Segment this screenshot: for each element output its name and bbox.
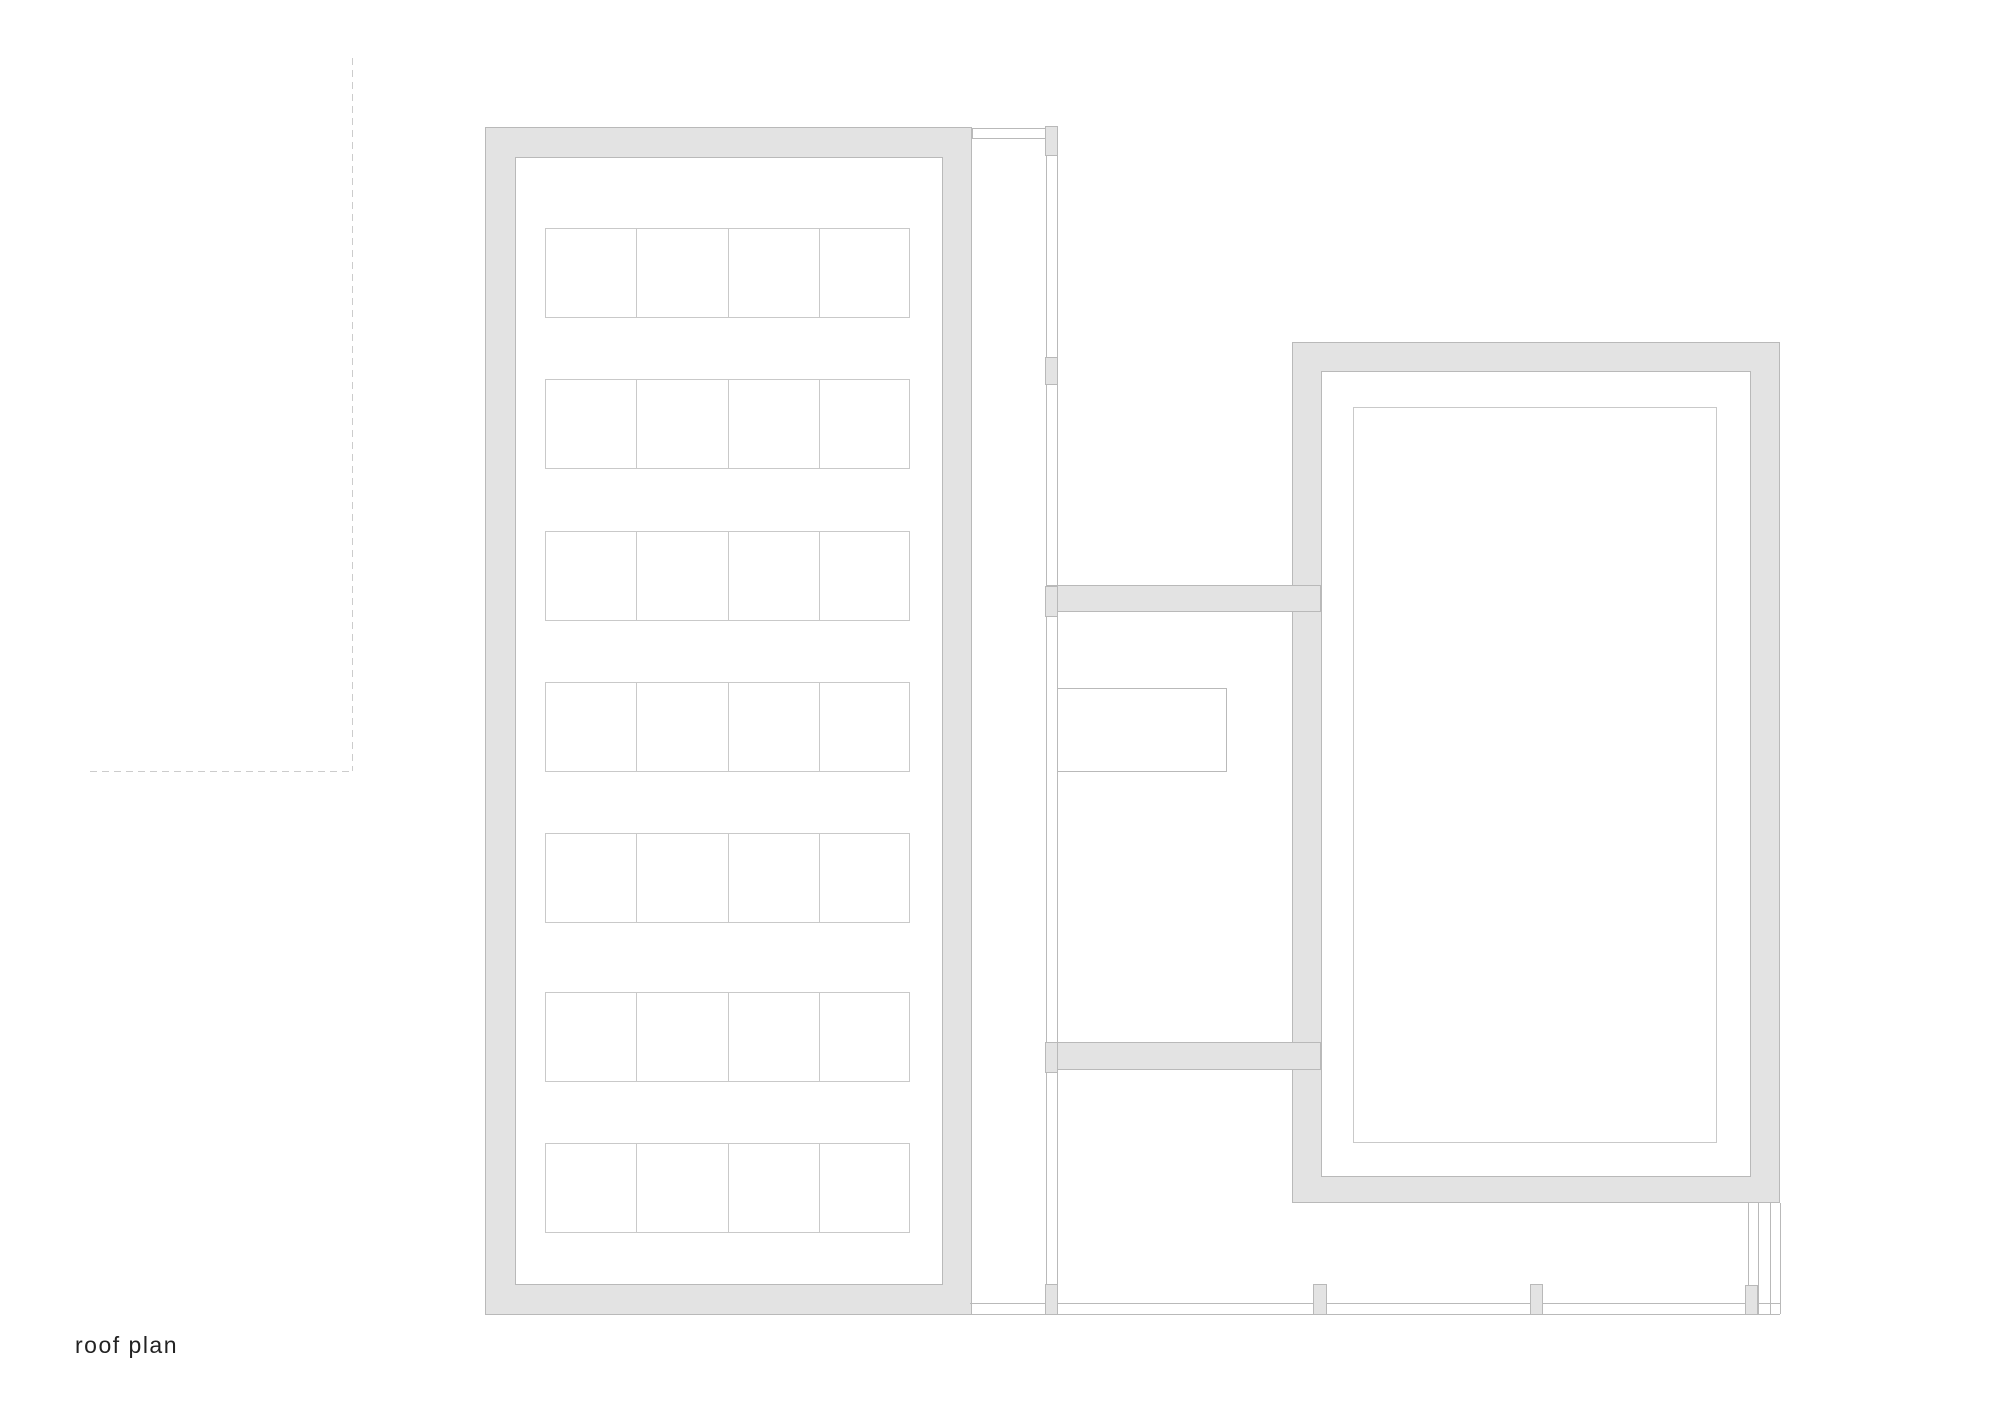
roof-plan-drawing: roof plan <box>0 0 2000 1413</box>
connector-hatch-rect <box>1057 688 1227 772</box>
terrace-pier-2 <box>1313 1284 1327 1315</box>
skylight-row-6-divider-2 <box>728 992 729 1082</box>
right-hall-rooflight <box>1353 407 1717 1143</box>
cross-wall-upper <box>1046 585 1321 612</box>
terrace-right-line-2 <box>1758 1203 1759 1314</box>
skylight-row-1-divider-3 <box>819 228 820 318</box>
skylight-row-4-divider-1 <box>636 682 637 772</box>
skylight-row-4-divider-2 <box>728 682 729 772</box>
site-boundary-dashed-vertical <box>352 58 353 771</box>
skylight-row-1-divider-2 <box>728 228 729 318</box>
skylight-row-2-divider-3 <box>819 379 820 469</box>
skylight-row-6-divider-1 <box>636 992 637 1082</box>
cross-wall-lower <box>1046 1042 1321 1070</box>
terrace-right-line-4 <box>1780 1203 1781 1314</box>
terrace-right-line-3 <box>1770 1203 1771 1314</box>
terrace-pier-3 <box>1530 1284 1543 1315</box>
corridor-pier-upper <box>1045 357 1058 385</box>
drawing-title-label: roof plan <box>75 1332 178 1359</box>
corridor-wall-line-1 <box>1046 127 1047 1315</box>
skylight-row-6-divider-3 <box>819 992 820 1082</box>
corridor-pier-top <box>1045 126 1058 156</box>
connector-top-canopy-band <box>972 128 1046 139</box>
skylight-row-5-divider-1 <box>636 833 637 923</box>
skylight-row-2-divider-1 <box>636 379 637 469</box>
terrace-pier-1 <box>1045 1284 1058 1315</box>
terrace-edge-line-1 <box>970 1303 1780 1304</box>
skylight-row-4-divider-3 <box>819 682 820 772</box>
corridor-pier-crosswall <box>1045 586 1058 617</box>
terrace-pier-4 <box>1745 1285 1758 1315</box>
skylight-row-7-divider-3 <box>819 1143 820 1233</box>
skylight-row-7-divider-2 <box>728 1143 729 1233</box>
skylight-row-7-divider-1 <box>636 1143 637 1233</box>
skylight-row-1-divider-1 <box>636 228 637 318</box>
skylight-row-3-divider-1 <box>636 531 637 621</box>
skylight-row-2-divider-2 <box>728 379 729 469</box>
skylight-row-5-divider-3 <box>819 833 820 923</box>
corridor-pier-lower <box>1045 1042 1058 1073</box>
terrace-edge-line-2 <box>970 1314 1780 1315</box>
skylight-row-5-divider-2 <box>728 833 729 923</box>
skylight-row-3-divider-3 <box>819 531 820 621</box>
skylight-row-3-divider-2 <box>728 531 729 621</box>
site-boundary-dashed-horizontal <box>90 771 352 772</box>
